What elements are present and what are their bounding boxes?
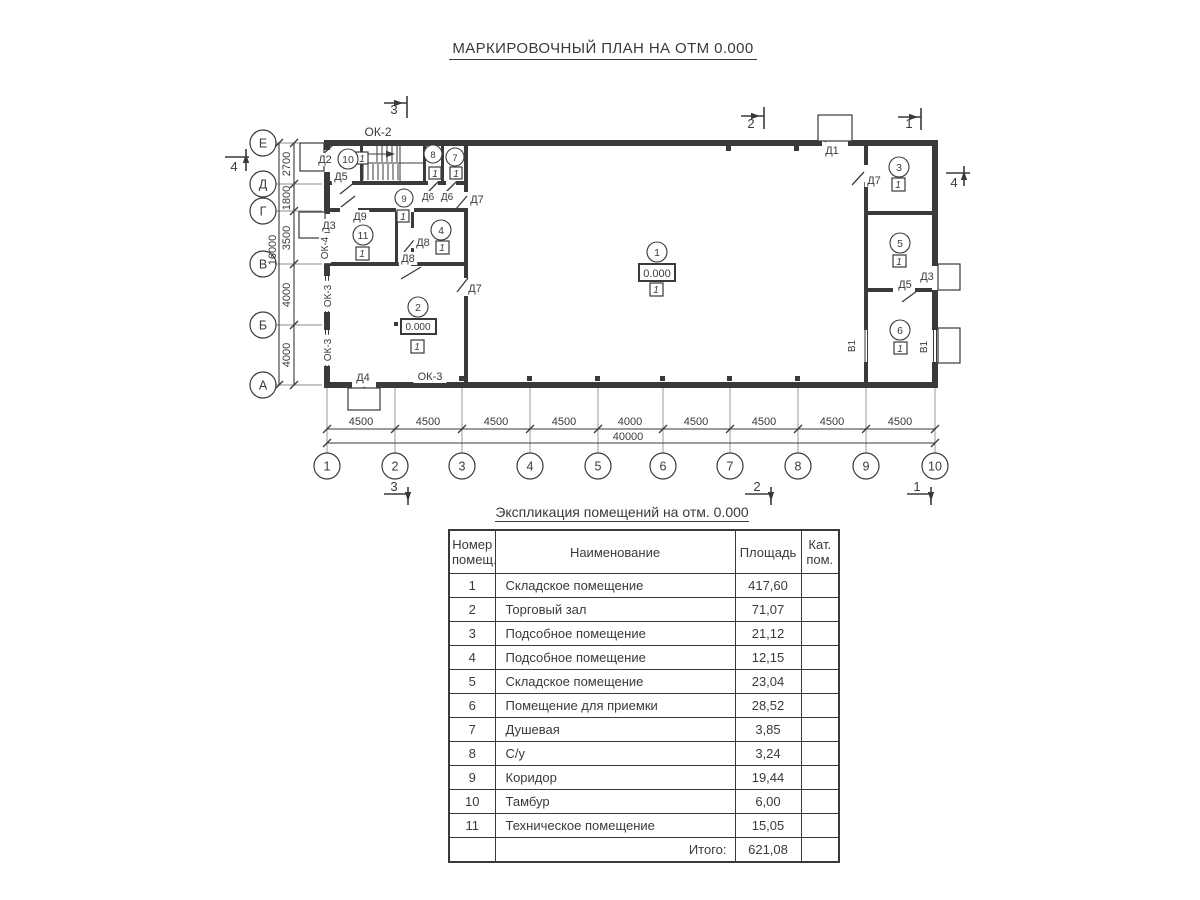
- plan-label-group: 1800: [281, 186, 293, 210]
- plan-label-group: 4000: [618, 416, 642, 428]
- total-value-cell: 621,08: [735, 838, 801, 863]
- plan-label-group: Д8: [399, 252, 418, 265]
- total-row: Итого:621,08: [449, 838, 839, 863]
- wall: [411, 212, 414, 228]
- arrowhead: [386, 151, 395, 157]
- plan-label: Д5: [334, 171, 348, 183]
- table-row: 5Складское помещение23,04: [449, 670, 839, 694]
- room-number-cell: 8: [449, 742, 495, 766]
- room-number: 9: [401, 194, 406, 205]
- room-cat-cell: [801, 790, 839, 814]
- plan-label: 1: [439, 243, 445, 254]
- total-empty-cell: [449, 838, 495, 863]
- plan-label-group: 4500: [820, 416, 844, 428]
- room-area-cell: 417,60: [735, 574, 801, 598]
- table-row: 8С/у3,24: [449, 742, 839, 766]
- plan-label: ОК-3: [323, 284, 334, 307]
- plan-label-group: Д9: [351, 210, 370, 223]
- wall: [848, 140, 938, 146]
- plan-label-group: Д2: [316, 153, 335, 166]
- plan-label-group: Д7: [865, 174, 884, 187]
- axis-label: Е: [259, 137, 267, 151]
- room-number-cell: 3: [449, 622, 495, 646]
- wall: [932, 362, 938, 388]
- room-number: 10: [342, 154, 354, 166]
- plan-label: 2700: [281, 152, 293, 176]
- plan-label-group: Д6: [419, 191, 436, 203]
- outline-box: [818, 115, 852, 141]
- table-row: 7Душевая3,85: [449, 718, 839, 742]
- arrowhead: [405, 492, 411, 501]
- wall: [411, 262, 464, 266]
- room-area-cell: 23,04: [735, 670, 801, 694]
- wall: [324, 366, 330, 382]
- door-leaf: [456, 196, 467, 209]
- column-header-0: Номер помещ.: [449, 530, 495, 574]
- marker-square: [660, 376, 665, 381]
- plan-label-group: Д1: [823, 144, 842, 157]
- plan-label-group: 0.000: [405, 322, 430, 333]
- axis-label: 8: [795, 460, 802, 474]
- axis-label: 2: [392, 460, 399, 474]
- plan-label: 1: [359, 154, 365, 165]
- room-number: 5: [897, 238, 903, 250]
- wall: [324, 140, 822, 146]
- plan-label-group: 1: [359, 154, 365, 165]
- room-name-cell: Помещение для приемки: [495, 694, 735, 718]
- plan-label-group: В1: [918, 338, 930, 355]
- table-title-text: Экспликация помещений на отм. 0.000: [495, 504, 748, 522]
- room-number-cell: 5: [449, 670, 495, 694]
- room-area-cell: 15,05: [735, 814, 801, 838]
- plan-label: 4: [230, 159, 237, 174]
- plan-label-group: 1: [432, 169, 438, 180]
- room-area-cell: 3,24: [735, 742, 801, 766]
- wall: [932, 290, 938, 330]
- wall: [324, 262, 399, 266]
- total-cat-cell: [801, 838, 839, 863]
- room-name-cell: Подсобное помещение: [495, 646, 735, 670]
- table-row: 9Коридор19,44: [449, 766, 839, 790]
- room-cat-cell: [801, 814, 839, 838]
- plan-label: 4500: [888, 416, 912, 428]
- room-number-cell: 1: [449, 574, 495, 598]
- plan-label-group: Д4: [354, 371, 373, 384]
- wall: [864, 362, 868, 382]
- room-name-cell: Коридор: [495, 766, 735, 790]
- wall: [324, 208, 340, 212]
- room-number-cell: 2: [449, 598, 495, 622]
- plan-label: 4000: [618, 416, 642, 428]
- plan-label-group: 4: [950, 175, 957, 190]
- plan-label: Д1: [825, 145, 839, 157]
- room-name-cell: Душевая: [495, 718, 735, 742]
- plan-label: 3: [390, 479, 397, 494]
- wall: [324, 172, 330, 214]
- door-leaf: [341, 196, 355, 207]
- axis-label: Б: [259, 319, 267, 333]
- plan-label: Д3: [920, 271, 934, 283]
- room-number-cell: 7: [449, 718, 495, 742]
- room-area-cell: 3,85: [735, 718, 801, 742]
- axis-label: 1: [324, 460, 331, 474]
- plan-label-group: ОК-2: [365, 125, 392, 139]
- plan-label-group: Д7: [466, 282, 485, 295]
- plan-label: 0.000: [405, 322, 430, 333]
- plan-label-group: 3: [390, 479, 397, 494]
- room-cat-cell: [801, 718, 839, 742]
- marker-square: [595, 376, 600, 381]
- plan-label-group: 3500: [281, 226, 293, 250]
- drawing-sheet: МАРКИРОВОЧНЫЙ ПЛАН НА ОТМ 0.000 12345678…: [0, 0, 1200, 900]
- door-leaf: [428, 182, 438, 192]
- column-header-1: Наименование: [495, 530, 735, 574]
- plan-label: Д7: [867, 175, 881, 187]
- plan-label: 1: [895, 180, 901, 191]
- table-row: 3Подсобное помещение21,12: [449, 622, 839, 646]
- room-cat-cell: [801, 694, 839, 718]
- plan-label-group: 2: [753, 479, 760, 494]
- marker-square: [795, 376, 800, 381]
- arrowhead: [928, 492, 934, 501]
- room-number: 1: [654, 247, 660, 259]
- plan-label: 40000: [613, 431, 644, 443]
- plan-label: 1: [897, 344, 903, 355]
- axis-label: 9: [863, 460, 870, 474]
- plan-label-group: ОК-3: [413, 370, 446, 383]
- marker-square: [726, 146, 731, 151]
- room-cat-cell: [801, 622, 839, 646]
- plan-label: 4500: [484, 416, 508, 428]
- plan-label-group: 4500: [416, 416, 440, 428]
- plan-label-group: 1: [414, 342, 420, 353]
- plan-label-group: Д7: [468, 193, 487, 206]
- plan-label-group: ОК-3: [322, 281, 334, 311]
- plan-label-group: 1: [897, 344, 903, 355]
- wall: [352, 181, 428, 185]
- room-cat-cell: [801, 598, 839, 622]
- plan-label: 4500: [349, 416, 373, 428]
- plan-label: 1: [913, 479, 920, 494]
- plan-label-group: Д8: [414, 236, 433, 249]
- room-cat-cell: [801, 766, 839, 790]
- room-number: 4: [438, 225, 444, 237]
- plan-label: Д8: [401, 253, 415, 265]
- room-cat-cell: [801, 574, 839, 598]
- plan-label-group: 1: [359, 249, 365, 260]
- plan-label-group: 40000: [613, 431, 644, 443]
- plan-label: Д9: [353, 211, 367, 223]
- plan-label: ОК-3: [323, 338, 334, 361]
- wall: [864, 182, 868, 330]
- room-name-cell: Складское помещение: [495, 670, 735, 694]
- table-row: 4Подсобное помещение12,15: [449, 646, 839, 670]
- column-header-2: Площадь: [735, 530, 801, 574]
- room-name-cell: Складское помещение: [495, 574, 735, 598]
- plan-label-group: Д3: [320, 219, 339, 232]
- total-label-cell: Итого:: [495, 838, 735, 863]
- door-leaf: [340, 182, 355, 194]
- axis-label: 7: [727, 460, 734, 474]
- wall: [324, 181, 332, 185]
- plan-label-group: Д5: [332, 170, 351, 183]
- axis-label: 4: [527, 460, 534, 474]
- plan-label-group: 4500: [552, 416, 576, 428]
- plan-label-group: 1: [439, 243, 445, 254]
- plan-label-group: В1: [846, 337, 858, 354]
- room-area-cell: 6,00: [735, 790, 801, 814]
- plan-label: 1: [896, 257, 902, 268]
- plan-label: 4500: [684, 416, 708, 428]
- plan-label: Д7: [470, 194, 484, 206]
- plan-label-group: 1: [453, 169, 459, 180]
- plan-label: 4000: [281, 283, 293, 307]
- room-name-cell: С/у: [495, 742, 735, 766]
- plan-label: 1: [653, 285, 659, 296]
- wall: [868, 288, 893, 292]
- room-cat-cell: [801, 670, 839, 694]
- plan-label: ОК-3: [418, 371, 443, 383]
- plan-label: Д5: [898, 279, 912, 291]
- wall: [464, 296, 468, 382]
- plan-label-group: ОК-3: [322, 335, 334, 365]
- table-title: Экспликация помещений на отм. 0.000: [426, 504, 818, 520]
- room-number-cell: 9: [449, 766, 495, 790]
- door-leaf: [401, 267, 421, 279]
- plan-label: В1: [847, 339, 858, 352]
- column-header-3: Кат. пом.: [801, 530, 839, 574]
- plan-label: 16000: [267, 235, 279, 266]
- plan-label: 4500: [552, 416, 576, 428]
- plan-label-group: 4500: [349, 416, 373, 428]
- arrowhead: [768, 492, 774, 501]
- room-number: 8: [430, 150, 435, 161]
- room-name-cell: Торговый зал: [495, 598, 735, 622]
- wall: [438, 181, 446, 185]
- wall: [456, 181, 464, 185]
- plan-label: 4500: [752, 416, 776, 428]
- table-header-row: Номер помещ.НаименованиеПлощадьКат. пом.: [449, 530, 839, 574]
- wall: [324, 382, 352, 388]
- room-number: 6: [897, 325, 903, 337]
- room-area-cell: 12,15: [735, 646, 801, 670]
- axis-label: 3: [459, 460, 466, 474]
- arrowhead: [243, 154, 249, 163]
- room-schedule: Экспликация помещений на отм. 0.000 Номе…: [448, 504, 840, 863]
- plan-label-group: 1: [913, 479, 920, 494]
- wall: [915, 288, 932, 292]
- plan-label-group: ОК-4: [319, 233, 331, 263]
- wall: [324, 312, 330, 330]
- rooms-table: Номер помещ.НаименованиеПлощадьКат. пом.…: [448, 529, 840, 863]
- plan-label-group: 1: [653, 285, 659, 296]
- outline-box: [938, 264, 960, 290]
- room-number-cell: 6: [449, 694, 495, 718]
- plan-label: 4500: [416, 416, 440, 428]
- room-number: 11: [358, 230, 369, 242]
- marker-square: [794, 146, 799, 151]
- room-cat-cell: [801, 742, 839, 766]
- wall: [868, 211, 932, 215]
- room-number-cell: 11: [449, 814, 495, 838]
- wall: [932, 140, 938, 266]
- floor-plan: 123456789101112345678910ЕДГВБАОК-2Д2Д5Д9…: [0, 0, 1200, 515]
- room-area-cell: 19,44: [735, 766, 801, 790]
- plan-label-group: 4500: [484, 416, 508, 428]
- plan-label-group: 4500: [888, 416, 912, 428]
- plan-label: 1: [359, 249, 365, 260]
- arrowhead: [394, 100, 403, 106]
- plan-label: Д4: [356, 372, 370, 384]
- plan-label-group: Д5: [896, 278, 915, 291]
- room-area-cell: 21,12: [735, 622, 801, 646]
- arrowhead: [909, 114, 918, 120]
- plan-label-group: 1: [895, 180, 901, 191]
- plan-label: Д3: [322, 220, 336, 232]
- plan-label: 4500: [820, 416, 844, 428]
- room-number: 7: [452, 153, 457, 164]
- plan-label: 4: [950, 175, 957, 190]
- wall: [464, 140, 468, 192]
- room-number: 2: [415, 302, 421, 314]
- plan-label: 0.000: [643, 268, 671, 280]
- plan-label: 1: [400, 212, 406, 223]
- room-name-cell: Техническое помещение: [495, 814, 735, 838]
- table-row: 6Помещение для приемки28,52: [449, 694, 839, 718]
- plan-label: ОК-2: [365, 125, 392, 139]
- plan-label-group: Д6: [438, 191, 455, 203]
- plan-label: Д6: [422, 192, 435, 203]
- plan-label: 1800: [281, 186, 293, 210]
- room-number-cell: 4: [449, 646, 495, 670]
- door-leaf: [902, 291, 917, 302]
- plan-label: 3500: [281, 226, 293, 250]
- room-name-cell: Подсобное помещение: [495, 622, 735, 646]
- table-row: 1Складское помещение417,60: [449, 574, 839, 598]
- door-leaf: [852, 172, 864, 185]
- wall: [376, 382, 938, 388]
- plan-label: В1: [919, 340, 930, 353]
- plan-label: Д2: [318, 154, 332, 166]
- outline-box: [348, 388, 380, 410]
- plan-label: Д6: [441, 192, 454, 203]
- plan-label: 1: [453, 169, 459, 180]
- marker-square: [394, 322, 398, 326]
- plan-label: 1: [414, 342, 420, 353]
- room-area-cell: 28,52: [735, 694, 801, 718]
- plan-label-group: 1: [400, 212, 406, 223]
- axis-label: Г: [260, 205, 267, 219]
- axis-label: Д: [259, 178, 268, 192]
- plan-label: Д7: [468, 283, 482, 295]
- wall: [464, 208, 468, 278]
- plan-label: 4000: [281, 343, 293, 367]
- plan-label-group: 2700: [281, 152, 293, 176]
- arrowhead: [751, 113, 760, 119]
- marker-square: [459, 376, 464, 381]
- table-row: 2Торговый зал71,07: [449, 598, 839, 622]
- room-number-cell: 10: [449, 790, 495, 814]
- wall: [864, 140, 868, 165]
- plan-label-group: Д3: [918, 270, 937, 283]
- plan-label: 1: [432, 169, 438, 180]
- axis-label: 6: [660, 460, 667, 474]
- outline-box: [938, 328, 960, 363]
- plan-label-group: 4000: [281, 283, 293, 307]
- plan-label: Д8: [416, 237, 430, 249]
- table-row: 11Техническое помещение15,05: [449, 814, 839, 838]
- plan-label-group: 16000: [267, 235, 279, 266]
- axis-label: А: [259, 379, 268, 393]
- plan-label-group: 4000: [281, 343, 293, 367]
- plan-label-group: 4500: [684, 416, 708, 428]
- room-cat-cell: [801, 646, 839, 670]
- plan-label-group: 1: [896, 257, 902, 268]
- marker-square: [527, 376, 532, 381]
- axis-label: В: [259, 258, 267, 272]
- room-name-cell: Тамбур: [495, 790, 735, 814]
- room-number: 3: [896, 162, 902, 174]
- plan-label-group: 0.000: [643, 268, 671, 280]
- room-area-cell: 71,07: [735, 598, 801, 622]
- plan-label-group: 4500: [752, 416, 776, 428]
- plan-label: ОК-4: [320, 236, 331, 259]
- plan-label: 2: [753, 479, 760, 494]
- plan-label-group: 4: [230, 159, 237, 174]
- axis-label: 5: [595, 460, 602, 474]
- marker-square: [727, 376, 732, 381]
- axis-label: 10: [928, 460, 942, 474]
- table-row: 10Тамбур6,00: [449, 790, 839, 814]
- door-leaf: [446, 182, 456, 192]
